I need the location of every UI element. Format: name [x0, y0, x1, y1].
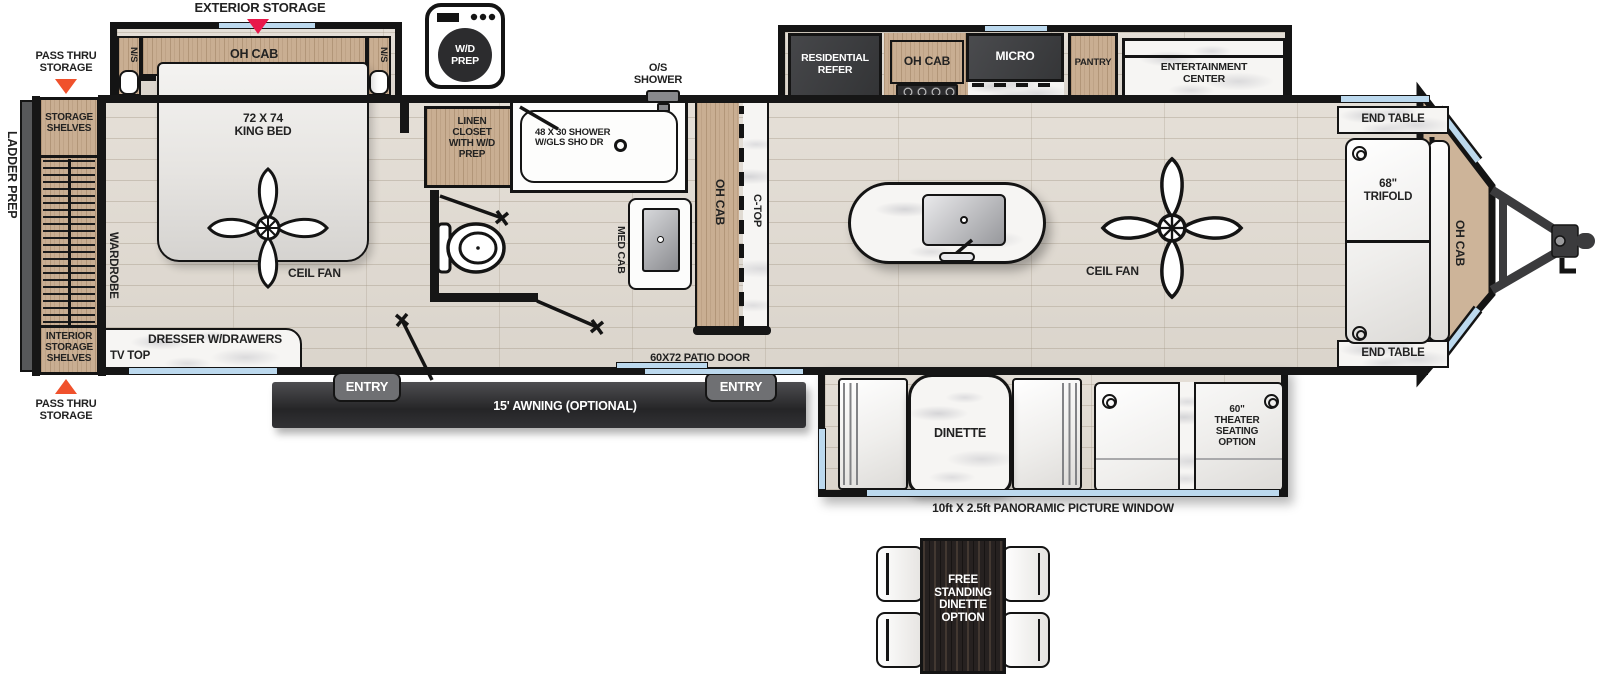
entry-left-label: ENTRY	[335, 380, 399, 394]
shower-head-icon	[646, 90, 680, 103]
vanity-faucet-dot	[657, 236, 664, 243]
storage-divider-1	[38, 155, 100, 158]
end-table-top-label: END TABLE	[1340, 113, 1446, 126]
bedroom-ceil-fan-label: CEIL FAN	[288, 267, 358, 280]
bedroom-oh-cab-label: OH CAB	[196, 48, 312, 62]
wd-prep-label: W/D PREP	[445, 44, 485, 67]
os-shower-label: O/S SHOWER	[628, 62, 688, 86]
top-wall	[98, 95, 1428, 103]
dinette-bench-right	[1012, 378, 1082, 490]
bath-wall-stub	[400, 103, 409, 133]
pass-thru-bottom-label: PASS THRU STORAGE	[18, 398, 114, 422]
living-ceil-fan-label: CEIL FAN	[1086, 265, 1156, 278]
interior-storage-shelves-label: INTERIOR STORAGE SHELVES	[41, 331, 97, 364]
storage-shelves-label: STORAGE SHELVES	[41, 112, 97, 134]
galley-c-top-label: C-TOP	[743, 158, 763, 263]
king-bed-label: 72 X 74 KING BED	[231, 112, 295, 138]
dinette-bench-left	[838, 378, 908, 490]
exterior-storage-label: EXTERIOR STORAGE	[170, 1, 350, 15]
wardrobe-label: WARDROBE	[101, 200, 119, 330]
sofa-cushion-divider	[1347, 240, 1429, 243]
dresser-label: DRESSER W/DRAWERS	[130, 333, 300, 346]
dinette-option-chair-4	[1002, 612, 1050, 668]
entertainment-center-shelf-line	[1124, 55, 1284, 58]
nightstand-left-label: N/S	[120, 38, 138, 72]
ceiling-fan-icon	[1090, 146, 1254, 310]
med-cab-label: MED CAB	[608, 210, 626, 290]
rear-wall	[32, 96, 40, 376]
ladder-prep-label: LADDER PREP	[0, 100, 18, 250]
micro-label: MICRO	[971, 50, 1059, 63]
bedroom-bottom-window	[128, 367, 278, 375]
theater-cupholder-left	[1102, 394, 1117, 409]
front-top-window	[1340, 95, 1430, 103]
end-table-bottom-label: END TABLE	[1340, 347, 1446, 360]
shower-head-nozzle	[657, 103, 670, 112]
front-oh-cab-label: OH CAB	[1446, 198, 1466, 288]
dinette-label: DINETTE	[912, 427, 1008, 441]
dinette-slide-left-window	[818, 428, 826, 490]
bath-bottom-wall	[430, 293, 538, 302]
storage-divider-2	[38, 325, 100, 328]
tv-top-label: TV TOP	[110, 350, 170, 363]
bath-left-wall	[430, 190, 439, 302]
pass-thru-top-label: PASS THRU STORAGE	[18, 50, 114, 74]
sofa-cupholder-top	[1352, 146, 1367, 161]
wardrobe-rod	[68, 159, 71, 325]
kitchen-window	[984, 25, 1048, 32]
nightstand-left-front	[119, 70, 139, 95]
galley-oh-cab-label: OH CAB	[706, 150, 726, 255]
exterior-storage-arrow	[247, 19, 269, 34]
awning-label: 15' AWNING (OPTIONAL)	[450, 400, 680, 414]
nightstand-right-front	[369, 70, 389, 95]
pantry-label: PANTRY	[1067, 58, 1119, 68]
theater-console	[1178, 382, 1196, 492]
patio-door-label: 60X72 PATIO DOOR	[638, 352, 762, 364]
dinette-option-chair-3	[1002, 546, 1050, 602]
shower-label: 48 X 30 SHOWER W/GLS SHO DR	[535, 128, 613, 149]
panoramic-window-label: 10ft X 2.5ft PANORAMIC PICTURE WINDOW	[927, 502, 1179, 515]
dinette-option-chair-1	[876, 546, 924, 602]
linen-closet-label: LINEN CLOSET WITH W/D PREP	[442, 116, 502, 160]
trifold-label: 68" TRIFOLD	[1358, 178, 1418, 203]
entertainment-center-label: ENTERTAINMENT CENTER	[1148, 62, 1260, 85]
entry-right-label: ENTRY	[708, 380, 774, 394]
pass-thru-bottom-arrow	[55, 379, 77, 394]
nightstand-right-label: N/S	[370, 38, 388, 72]
theater-seating-label: 60" THEATER SEATING OPTION	[1206, 404, 1268, 448]
patio-door-lower	[644, 368, 804, 375]
pass-thru-top-arrow	[55, 79, 77, 94]
toilet-icon	[432, 216, 512, 280]
panoramic-window	[866, 489, 1280, 497]
free-standing-dinette-label: FREE STANDING DINETTE OPTION	[928, 574, 998, 625]
dinette-option-chair-2	[876, 612, 924, 668]
island-sink-drain	[960, 216, 968, 224]
shower-drain	[614, 139, 627, 152]
micro-counter-dashes	[972, 83, 1060, 87]
residential-refer-label: RESIDENTIAL REFER	[793, 53, 877, 76]
kitchen-oh-cab-label: OH CAB	[892, 55, 962, 68]
sofa-cupholder-bottom	[1352, 326, 1367, 341]
floorplan: LADDER PREP STORAGE SHELVES INTERIOR STO…	[0, 0, 1600, 676]
galley-end-cap	[693, 326, 771, 335]
